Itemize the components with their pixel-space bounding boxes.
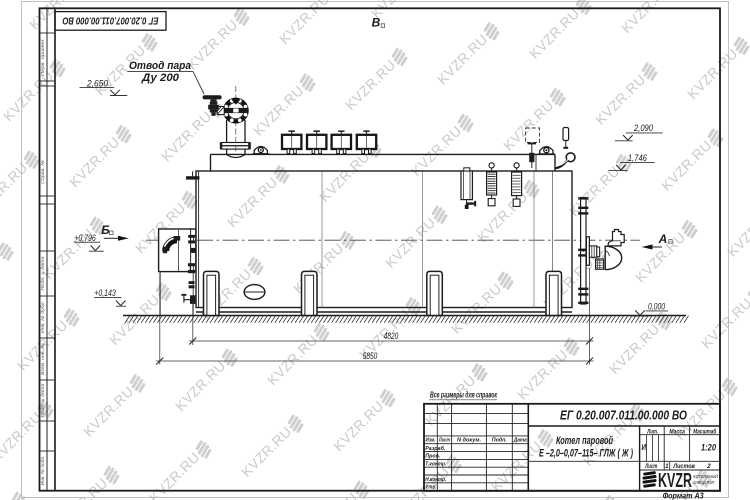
svg-text:Т.контр.: Т.контр. (425, 461, 446, 467)
svg-text:Котел паровой: Котел паровой (556, 435, 613, 447)
svg-text:KVZR.RU: KVZR.RU (592, 71, 649, 128)
svg-text:KVZR.RU: KVZR.RU (330, 397, 387, 454)
svg-text:Все размеры для справок: Все размеры для справок (430, 390, 498, 399)
svg-text:KVZR.RU: KVZR.RU (474, 188, 531, 245)
svg-text:KVZR.RU: KVZR.RU (684, 45, 741, 102)
svg-text:4820: 4820 (384, 331, 399, 341)
svg-text:KVZR.RU: KVZR.RU (698, 295, 750, 352)
svg-text:KVZR.RU: KVZR.RU (80, 383, 137, 440)
svg-text:KVZR.RU: KVZR.RU (172, 357, 229, 414)
svg-text:Подп. и дата: Подп. и дата (40, 383, 45, 418)
svg-text:KVZR.RU: KVZR.RU (0, 409, 45, 466)
svg-text:KVZR.RU: KVZR.RU (724, 203, 750, 260)
svg-text:KVZR.RU: KVZR.RU (618, 0, 675, 36)
svg-text:5850: 5850 (363, 351, 378, 361)
svg-text:Дата: Дата (513, 438, 527, 444)
svg-text:Справ. №: Справ. № (40, 160, 45, 184)
svg-text:Инв. № подл.: Инв. № подл. (40, 456, 45, 486)
svg-text:KVZR.RU: KVZR.RU (500, 97, 557, 154)
svg-text:KVZR.RU: KVZR.RU (264, 331, 321, 388)
svg-text:KVZR.RU: KVZR.RU (566, 163, 623, 220)
svg-text:KVZR.RU: KVZR.RU (0, 67, 57, 124)
svg-text:Н.контр.: Н.контр. (425, 477, 446, 483)
svg-text:KVZR.RU: KVZR.RU (422, 372, 479, 429)
svg-text:KVZR.RU: KVZR.RU (658, 137, 715, 194)
svg-text:KVZR.RU: KVZR.RU (514, 346, 571, 403)
svg-text:Б: Б (101, 223, 110, 237)
svg-text:1:20: 1:20 (701, 442, 717, 453)
svg-text:Подп. и дата: Подп. и дата (40, 256, 45, 291)
svg-text:Лист: Лист (438, 438, 450, 444)
svg-text:KVZR.RU: KVZR.RU (290, 240, 347, 297)
svg-text:KVZR.RU: KVZR.RU (184, 16, 241, 73)
svg-text:Взам. инв. №: Взам. инв. № (40, 343, 45, 375)
svg-text:Разраб.: Разраб. (425, 445, 445, 452)
svg-text:Лист: Лист (644, 463, 657, 470)
svg-text:ЕГ 0.20.007.011.00.000 ВО: ЕГ 0.20.007.011.00.000 ВО (560, 408, 688, 423)
svg-text:KVZR.RU: KVZR.RU (606, 320, 663, 377)
svg-text:KVZR.RU: KVZR.RU (238, 423, 295, 480)
svg-text:2,090: 2,090 (633, 123, 653, 134)
svg-text:Утв.: Утв. (425, 485, 436, 491)
svg-text:KVZR.RU: KVZR.RU (224, 174, 281, 231)
svg-text:N докум.: N докум. (457, 438, 481, 444)
svg-text:ЗАВОД РЭП: ЗАВОД РЭП (693, 480, 714, 486)
svg-text:Ду 200: Ду 200 (141, 72, 179, 84)
svg-text:И: И (642, 443, 647, 452)
svg-text:А: А (658, 232, 668, 246)
svg-text:KVZR.RU: KVZR.RU (488, 438, 545, 495)
svg-text:Перв. примен.: Перв. примен. (40, 38, 45, 76)
svg-text:Изм.: Изм. (426, 438, 436, 444)
svg-text:KVZR.RU: KVZR.RU (276, 0, 333, 47)
svg-text:KVZR.RU: KVZR.RU (448, 280, 505, 337)
svg-text:KVZR.RU: KVZR.RU (158, 108, 215, 165)
svg-text:KVZR.RU: KVZR.RU (342, 56, 399, 113)
svg-text:Подп.: Подп. (492, 438, 507, 444)
svg-text:ЕГ 0.20.007.011.00.000 ВО: ЕГ 0.20.007.011.00.000 ВО (63, 14, 159, 25)
svg-text:2: 2 (706, 463, 711, 470)
svg-text:В: В (372, 15, 381, 29)
svg-text:+0,796: +0,796 (74, 233, 96, 243)
svg-text:KVZR: KVZR (658, 470, 692, 492)
svg-text:KVZR.RU: KVZR.RU (106, 291, 163, 348)
svg-text:Пров.: Пров. (425, 454, 440, 460)
svg-text:Инв. № дубл.: Инв. № дубл. (40, 301, 45, 333)
svg-text:KVZR.RU: KVZR.RU (434, 31, 491, 88)
svg-text:KVZR.RU: KVZR.RU (526, 5, 583, 62)
svg-text:KVZR.RU: KVZR.RU (54, 475, 111, 500)
svg-text:Масштаб: Масштаб (693, 428, 716, 435)
svg-text:Отвод пара: Отвод пара (129, 60, 191, 72)
svg-text:KVZR.RU: KVZR.RU (382, 214, 439, 271)
svg-text:Формат А3: Формат А3 (663, 490, 704, 500)
svg-text:KVZR.RU: KVZR.RU (250, 82, 307, 139)
svg-text:Лит.: Лит. (647, 428, 659, 435)
svg-text:KVZR.RU: KVZR.RU (0, 159, 31, 216)
svg-text:Масса: Масса (669, 428, 685, 435)
svg-text:+0,143: +0,143 (94, 288, 116, 298)
svg-text:KVZR.RU: KVZR.RU (66, 133, 123, 190)
svg-text:KVZR.RU: KVZR.RU (0, 251, 5, 308)
svg-text:KVZR.RU: KVZR.RU (316, 148, 373, 205)
svg-text:KVZR.RU: KVZR.RU (146, 449, 203, 500)
svg-text:Е –2,0–0,07–115– ГЛЖ ( Ж ): Е –2,0–0,07–115– ГЛЖ ( Ж ) (539, 447, 633, 459)
